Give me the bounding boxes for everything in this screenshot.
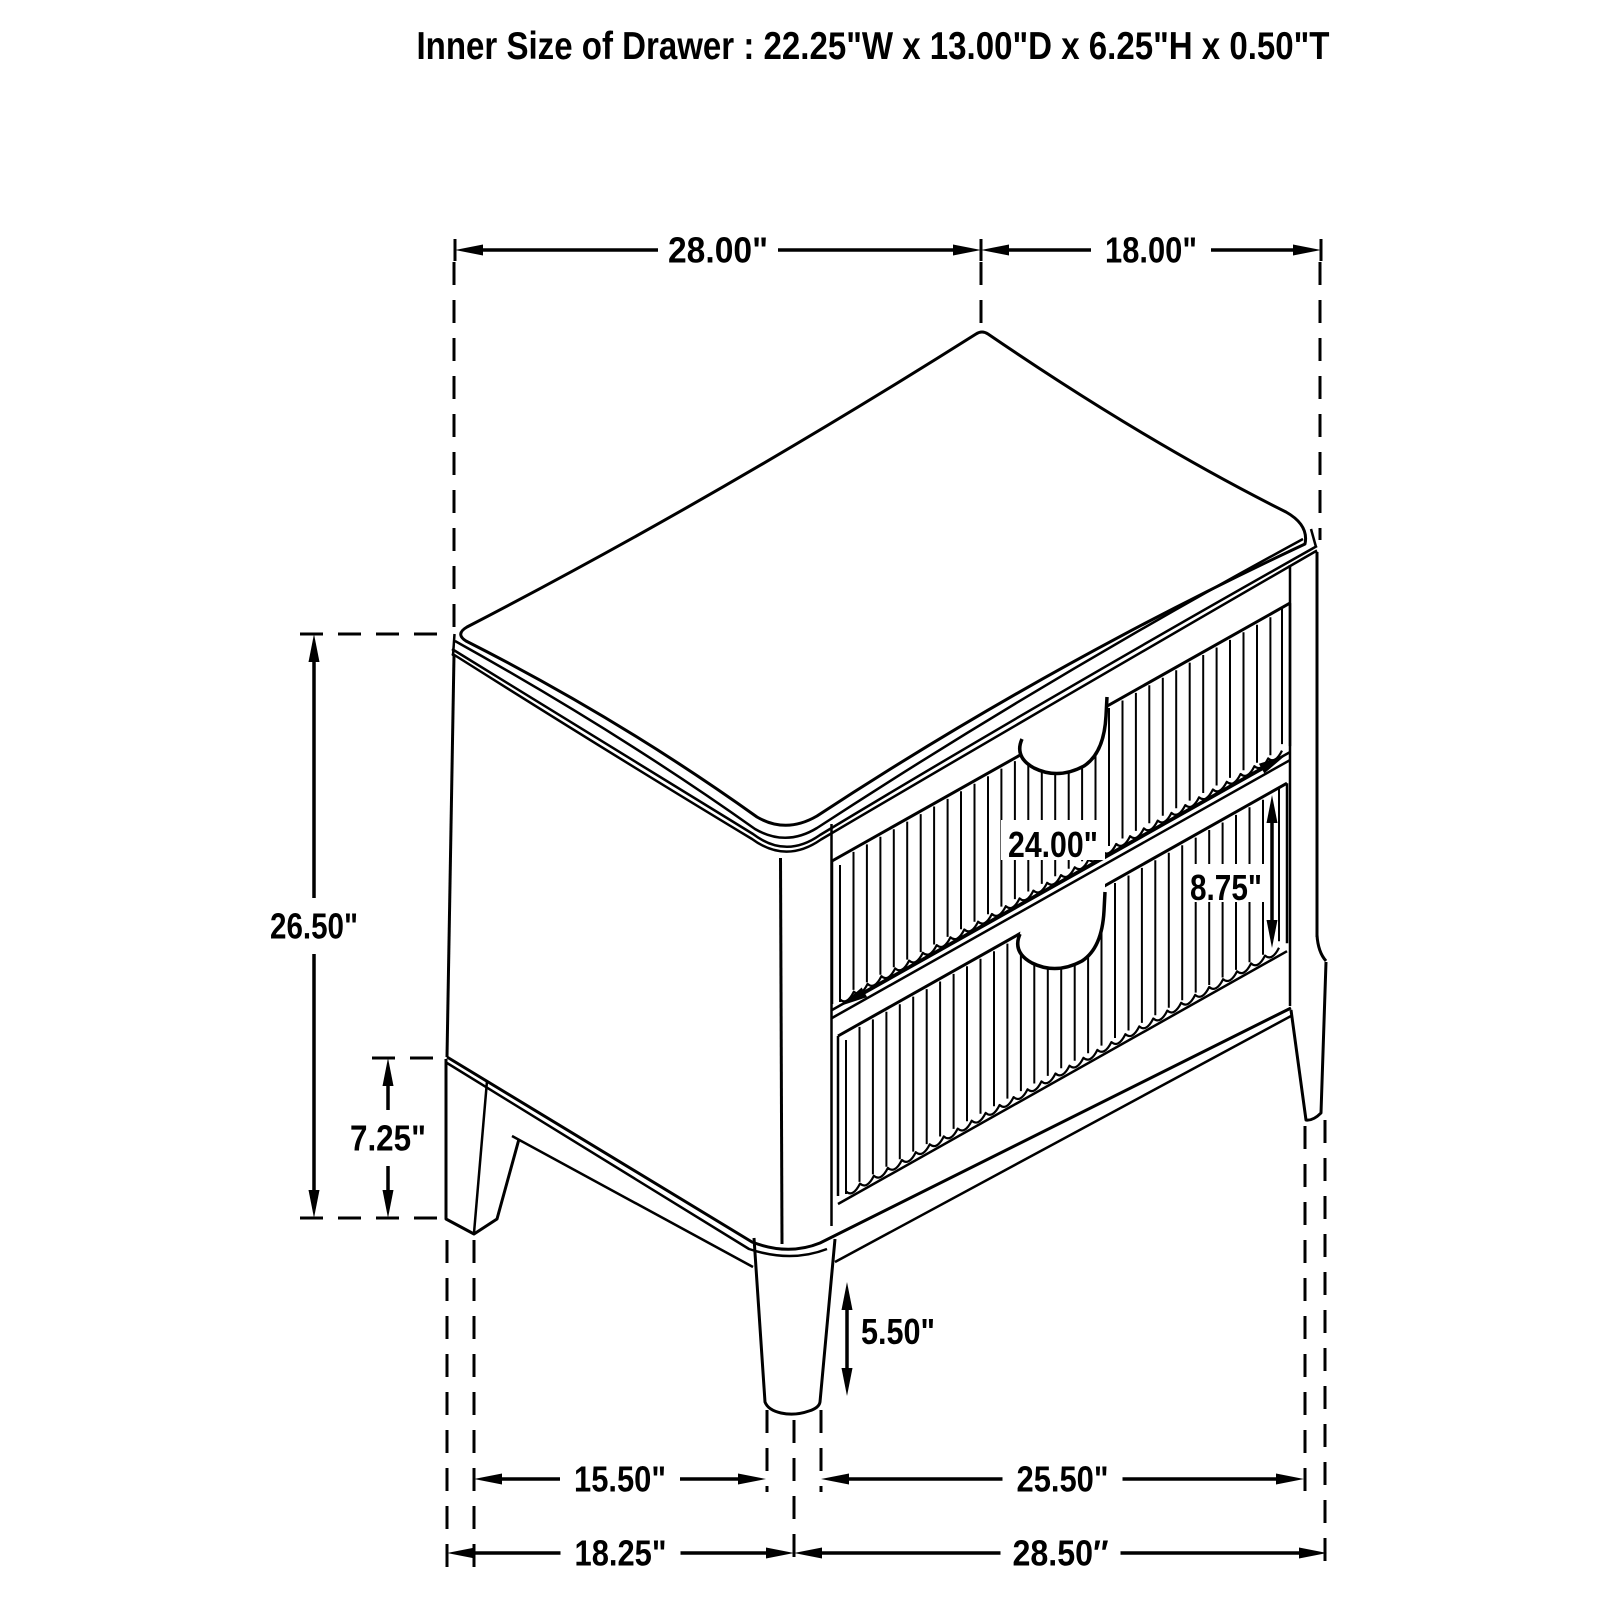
svg-text:8.75": 8.75" xyxy=(1190,867,1262,908)
svg-text:24.00": 24.00" xyxy=(1008,824,1098,865)
svg-text:15.50": 15.50" xyxy=(574,1459,666,1500)
svg-text:28.00": 28.00" xyxy=(668,230,768,271)
svg-text:18.00": 18.00" xyxy=(1105,230,1197,271)
svg-text:28.50″: 28.50″ xyxy=(1013,1533,1109,1574)
svg-text:26.50": 26.50" xyxy=(270,906,358,947)
svg-text:7.25": 7.25" xyxy=(350,1118,426,1159)
svg-text:Inner Size of Drawer : 22.25"W: Inner Size of Drawer : 22.25"W x 13.00"D… xyxy=(417,25,1330,68)
svg-text:25.50": 25.50" xyxy=(1017,1459,1109,1500)
svg-text:18.25": 18.25" xyxy=(575,1533,667,1574)
svg-text:5.50": 5.50" xyxy=(861,1311,935,1352)
